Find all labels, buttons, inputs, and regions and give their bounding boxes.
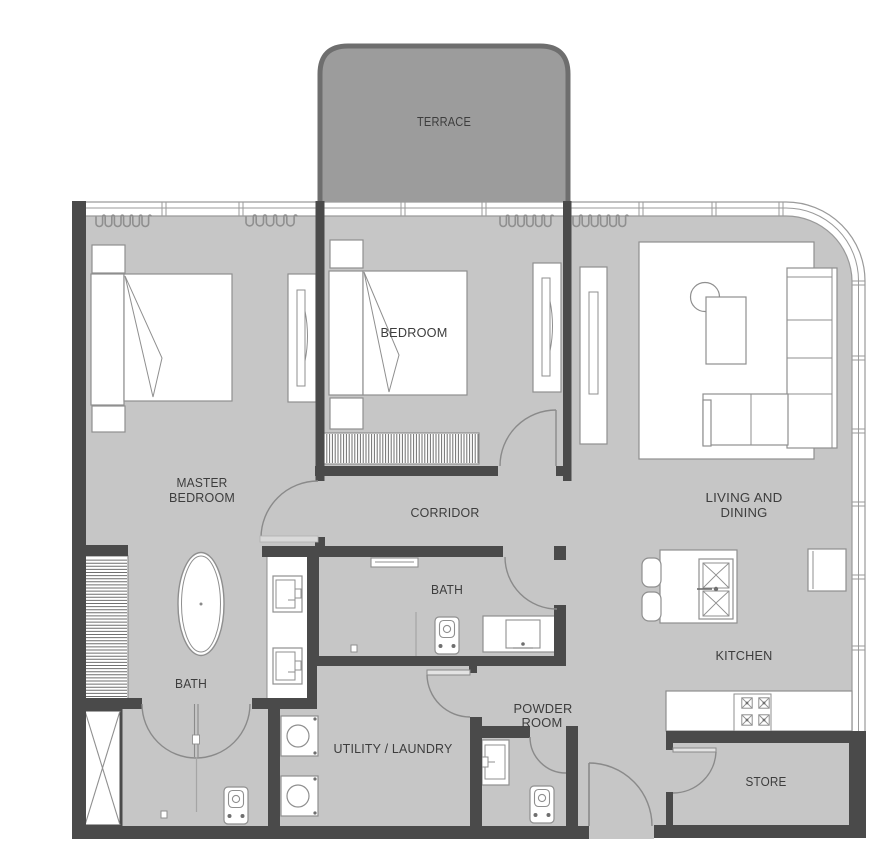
svg-text:BATH: BATH — [431, 582, 463, 597]
svg-text:CORRIDOR: CORRIDOR — [411, 505, 480, 520]
svg-text:POWDER: POWDER — [514, 701, 573, 716]
svg-text:UTILITY / LAUNDRY: UTILITY / LAUNDRY — [334, 741, 453, 756]
svg-text:LIVING AND: LIVING AND — [706, 490, 783, 505]
svg-text:DINING: DINING — [721, 505, 768, 520]
svg-text:STORE: STORE — [746, 774, 787, 789]
svg-text:BEDROOM: BEDROOM — [381, 325, 448, 340]
svg-text:BATH: BATH — [175, 676, 207, 691]
svg-text:ROOM: ROOM — [522, 715, 563, 730]
svg-text:TERRACE: TERRACE — [417, 114, 471, 129]
svg-text:BEDROOM: BEDROOM — [169, 490, 235, 505]
svg-text:KITCHEN: KITCHEN — [716, 648, 773, 663]
svg-text:MASTER: MASTER — [177, 475, 228, 490]
